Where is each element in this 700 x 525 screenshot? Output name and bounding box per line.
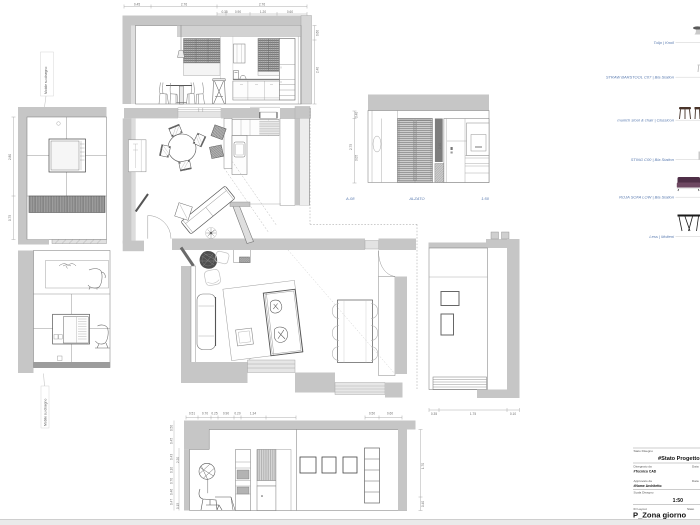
svg-text:0.90: 0.90	[235, 10, 241, 14]
svg-text:Tulip | Knoll: Tulip | Knoll	[653, 40, 674, 45]
svg-text:0.90: 0.90	[223, 412, 229, 416]
svg-text:1.70: 1.70	[421, 463, 425, 469]
svg-text:2.40: 2.40	[438, 143, 442, 149]
svg-text:0.46: 0.46	[170, 489, 174, 495]
svg-text:Stato: Stato	[687, 507, 695, 511]
svg-text:1.75: 1.75	[470, 412, 476, 416]
svg-text:0.50: 0.50	[369, 412, 375, 416]
svg-text:Mobile su disegno: Mobile su disegno	[44, 67, 48, 94]
svg-text:Scala Disegno: Scala Disegno	[634, 491, 654, 495]
svg-text:0.45: 0.45	[170, 438, 174, 444]
svg-text:0.10: 0.10	[510, 412, 516, 416]
svg-text:1:50: 1:50	[481, 196, 490, 201]
svg-text:0.43: 0.43	[170, 454, 174, 460]
svg-text:Stato Disegno: Stato Disegno	[634, 449, 654, 453]
svg-text:#Nome Architetto: #Nome Architetto	[634, 484, 662, 488]
svg-text:Data: Data	[692, 479, 699, 483]
svg-text:0.15: 0.15	[176, 503, 180, 509]
svg-text:1:50: 1:50	[673, 498, 683, 504]
svg-text:A-08: A-08	[345, 196, 355, 201]
svg-text:0.50: 0.50	[170, 425, 174, 431]
svg-text:munich stool & chair | Classic: munich stool & chair | Classicon	[617, 118, 674, 123]
svg-text:Less | Molteni: Less | Molteni	[649, 234, 674, 239]
svg-text:STRAW BARSTOOL C07 | Bla Sta: STRAW BARSTOOL C07 | Bla Station	[606, 75, 675, 80]
svg-text:1.20: 1.20	[260, 10, 266, 14]
svg-text:Data: Data	[692, 465, 699, 469]
svg-text:0.25: 0.25	[211, 412, 217, 416]
svg-text:2.76: 2.76	[181, 3, 187, 7]
svg-text:#Stato Progetto: #Stato Progetto	[658, 456, 700, 462]
svg-text:3.05: 3.05	[355, 155, 359, 161]
svg-text:0.35: 0.35	[431, 412, 437, 416]
svg-text:Approvato da: Approvato da	[634, 479, 653, 483]
svg-text:P_Zona giorno: P_Zona giorno	[633, 510, 687, 519]
svg-text:ALZATO: ALZATO	[408, 196, 424, 201]
svg-text:0.47: 0.47	[170, 499, 174, 505]
svg-text:0.60: 0.60	[387, 412, 393, 416]
svg-text:1.34: 1.34	[250, 412, 256, 416]
svg-text:2.40: 2.40	[316, 67, 320, 73]
svg-text:Mobile su disegno: Mobile su disegno	[44, 399, 48, 426]
svg-text:0.20: 0.20	[234, 412, 240, 416]
svg-text:0.40: 0.40	[421, 501, 425, 507]
svg-text:0.45: 0.45	[134, 3, 140, 7]
svg-text:0.75: 0.75	[8, 215, 12, 221]
svg-text:2.20: 2.20	[176, 457, 180, 463]
svg-text:0.60: 0.60	[287, 10, 293, 14]
svg-text:0.35: 0.35	[222, 10, 228, 14]
svg-text:0.70: 0.70	[170, 478, 174, 484]
svg-text:2.75: 2.75	[349, 144, 353, 150]
svg-text:ROJA SOFA LOW | Bla Station: ROJA SOFA LOW | Bla Station	[619, 195, 675, 200]
svg-text:STING C00 | Bla Station: STING C00 | Bla Station	[631, 157, 675, 162]
svg-text:3.40: 3.40	[355, 112, 359, 118]
svg-text:#Tecnico CAD: #Tecnico CAD	[634, 470, 657, 474]
svg-text:2.80: 2.80	[8, 154, 12, 160]
svg-text:0.10: 0.10	[170, 467, 174, 473]
svg-text:0.60: 0.60	[316, 30, 320, 36]
svg-text:0.51: 0.51	[189, 412, 195, 416]
svg-text:Disegnato da: Disegnato da	[634, 465, 653, 469]
svg-text:0.70: 0.70	[202, 412, 208, 416]
svg-text:2.76: 2.76	[259, 3, 265, 7]
